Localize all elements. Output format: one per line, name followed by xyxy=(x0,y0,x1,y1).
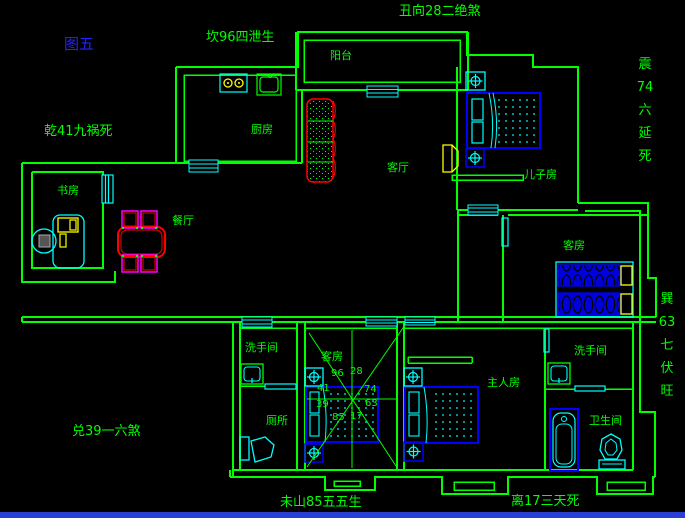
guest-south-nightstand-bottom xyxy=(305,444,323,462)
room-label-washroom-west: 洗手间 xyxy=(245,342,278,354)
tv xyxy=(443,145,458,172)
bathroom-toilet xyxy=(599,434,625,469)
room-label-toilet: 厕所 xyxy=(266,415,288,427)
kitchen-sink xyxy=(257,74,281,95)
room-label-guest-room-south: 客房 xyxy=(321,351,343,363)
sofa xyxy=(307,99,335,182)
room-label-guest-room-east: 客房 xyxy=(563,240,585,252)
master-nightstand-top xyxy=(404,368,422,386)
room-label-dining-room: 餐厅 xyxy=(172,215,194,227)
compass-number-17: 17 xyxy=(350,411,363,422)
compass-number-63: 63 xyxy=(365,398,378,409)
toilet-fixture xyxy=(240,437,274,462)
doors xyxy=(102,175,605,391)
guest-twin-beds xyxy=(556,262,633,317)
compass-number-85: 85 xyxy=(332,412,345,423)
compass-number-96: 96 xyxy=(331,368,344,379)
floor-plan-canvas[interactable] xyxy=(0,0,685,518)
master-bed xyxy=(405,387,478,443)
compass-rose xyxy=(307,325,405,468)
study-door xyxy=(102,175,113,203)
annotation-xun-char: 伏 xyxy=(660,357,673,380)
annotation-dui: 兑39一六煞 xyxy=(72,425,141,439)
compass-number-74: 74 xyxy=(364,384,377,395)
dining-table xyxy=(118,227,165,257)
annotation-li: 离17三天死 xyxy=(511,495,580,509)
annotation-chou: 丑向28二绝煞 xyxy=(399,5,481,19)
annotation-xun-char: 七 xyxy=(660,334,673,357)
annotation-zhen-char: 74 xyxy=(637,76,654,99)
annotation-zhen-char: 死 xyxy=(638,145,651,168)
guest-south-window xyxy=(366,317,397,326)
cad-viewport: 图五 坎96四泄生 丑向28二绝煞 乾41九祸死 兑39一六煞 未山85五五生 … xyxy=(0,0,685,518)
room-label-living-room: 客厅 xyxy=(387,162,409,174)
study-desk xyxy=(53,215,84,268)
room-label-son-room: 儿子房 xyxy=(524,169,557,181)
windows xyxy=(189,86,498,327)
room-label-kitchen: 厨房 xyxy=(251,124,273,136)
room-label-study: 书房 xyxy=(57,185,79,197)
washroom-west-door xyxy=(265,384,296,389)
annotation-kan: 坎96四泄生 xyxy=(206,31,275,45)
washroom-east-sink xyxy=(548,363,570,384)
annotation-qian: 乾41九祸死 xyxy=(44,125,113,139)
washroom-west-window xyxy=(242,317,272,327)
room-label-washroom-east: 洗手间 xyxy=(574,345,607,357)
annotation-zhen-char: 延 xyxy=(638,122,651,145)
annotation-zhen-char: 震 xyxy=(638,53,651,76)
kitchen-window xyxy=(189,160,218,172)
figure-label: 图五 xyxy=(64,36,94,53)
room-label-balcony: 阳台 xyxy=(330,50,352,62)
son-bed xyxy=(467,93,540,148)
son-nightstand-bottom xyxy=(466,149,484,167)
annotation-xun-char: 巽 xyxy=(660,288,673,311)
master-room-window xyxy=(405,317,435,325)
annotation-xun-char: 旺 xyxy=(660,380,673,403)
annotation-weishan: 未山85五五生 xyxy=(280,496,362,510)
compass-number-39: 39 xyxy=(316,399,329,410)
annotation-zhen: 震 74 六 延 死 xyxy=(633,53,657,168)
son-room-window xyxy=(468,205,498,215)
dining-chairs xyxy=(122,211,157,272)
room-label-bathroom: 卫生间 xyxy=(589,415,622,427)
room-label-master-room: 主人房 xyxy=(487,377,520,389)
annotation-xun-char: 63 xyxy=(659,311,676,334)
compass-number-28: 28 xyxy=(350,366,363,377)
annotation-zhen-char: 六 xyxy=(638,99,651,122)
stove xyxy=(220,74,247,92)
window-edge-strip xyxy=(0,512,685,518)
compass-number-41: 41 xyxy=(317,383,330,394)
master-nightstand-bottom xyxy=(404,442,423,461)
washroom-west-sink xyxy=(241,364,263,384)
balcony-window xyxy=(367,86,398,97)
bathtub xyxy=(550,409,578,471)
washroom-east-door xyxy=(575,386,605,391)
annotation-xun: 巽 63 七 伏 旺 xyxy=(655,288,679,403)
